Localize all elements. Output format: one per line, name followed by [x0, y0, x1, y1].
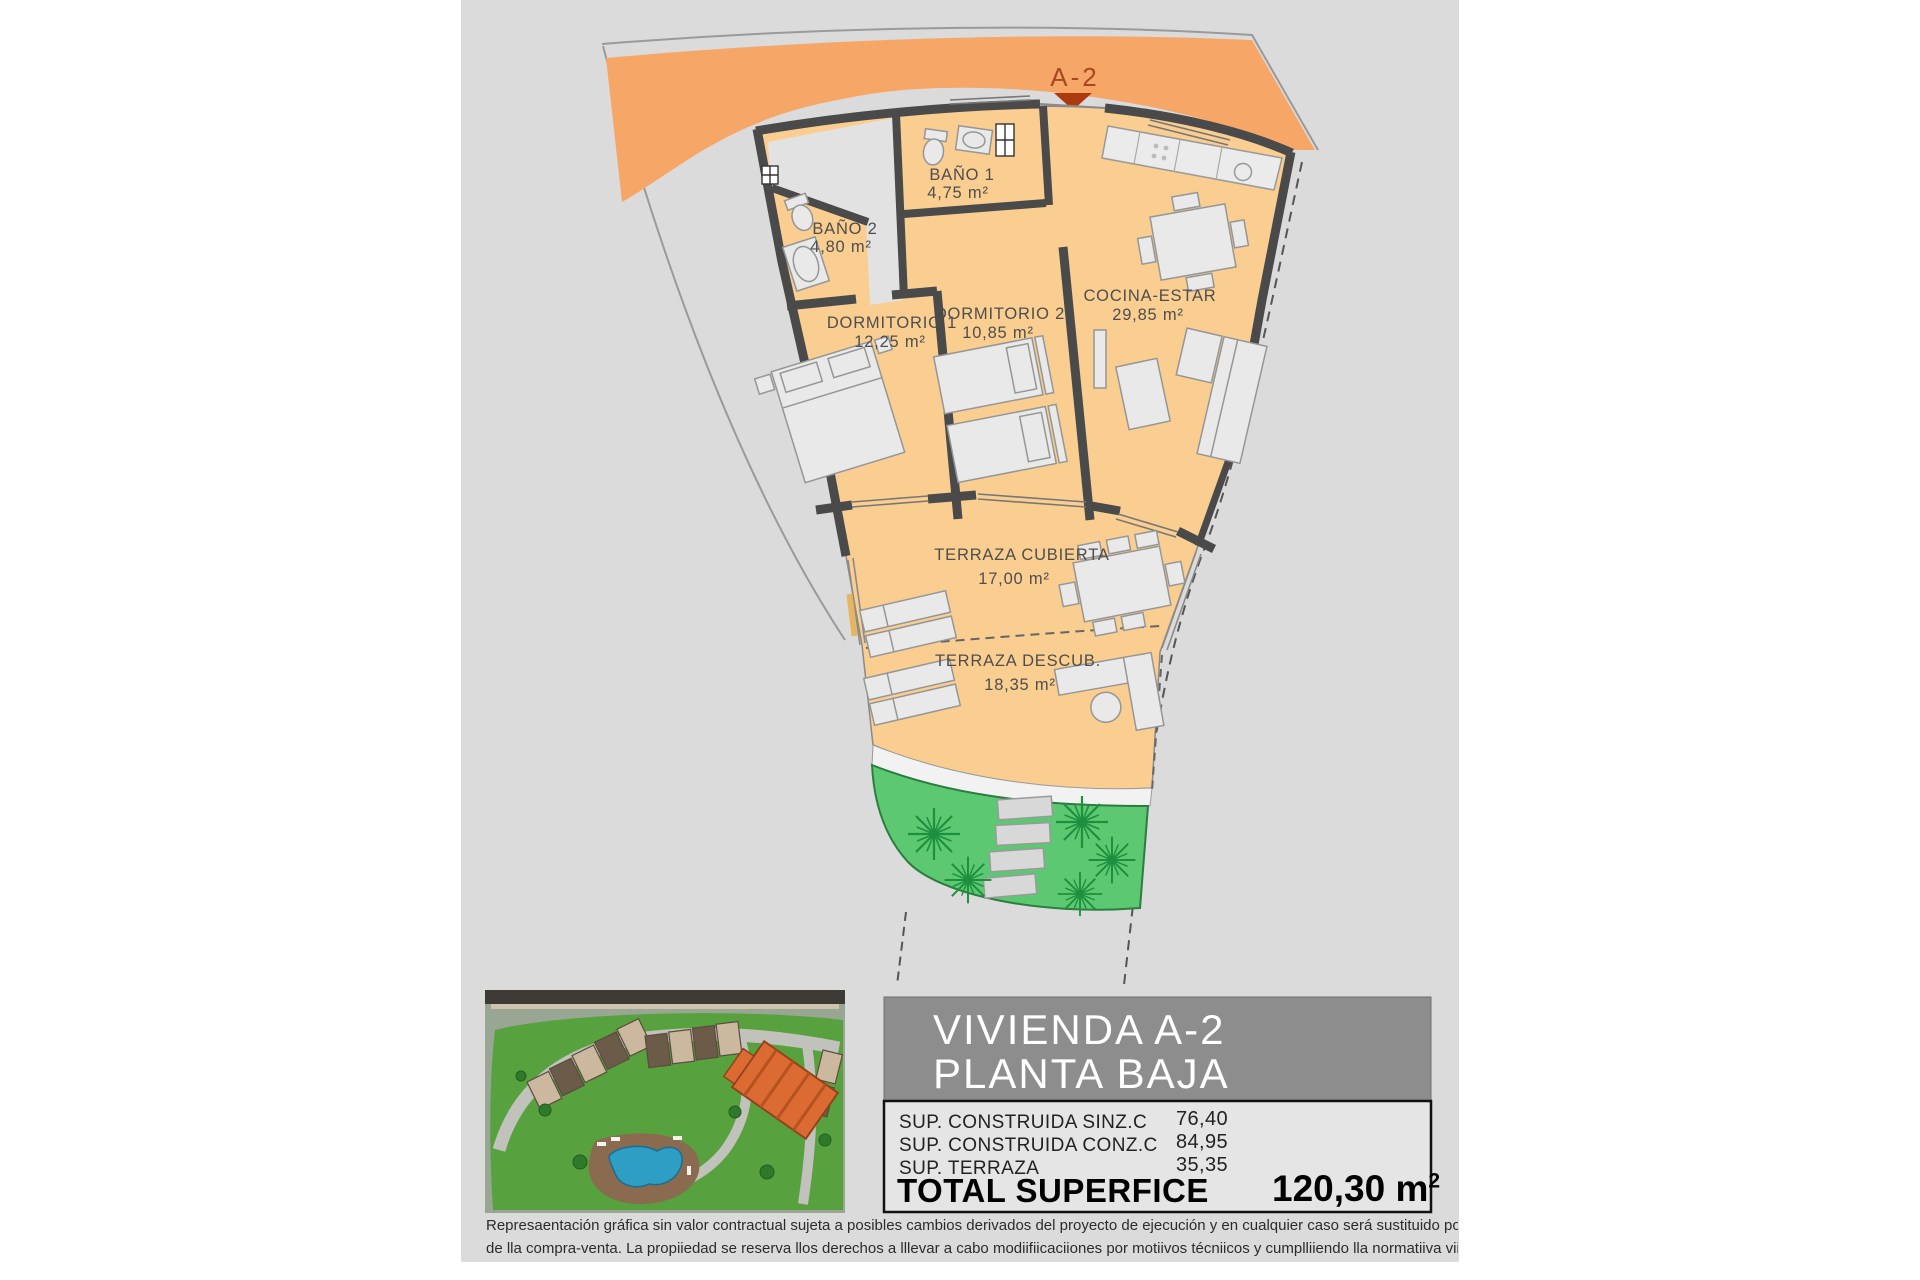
unit-title-line2: PLANTA BAJA: [933, 1052, 1230, 1096]
unit-title-line1: VIVIENDA A-2: [933, 1008, 1225, 1052]
room-label-bano1: BAÑO 1: [929, 164, 994, 184]
room-label-dormitorio2: DORMITORIO 2: [935, 305, 1065, 323]
total-surface-number: 120,30 m: [1272, 1168, 1428, 1209]
room-label-terraza-descub: TERRAZA DESCUB.: [935, 652, 1101, 670]
room-area-dormitorio2: 10,85 m²: [962, 324, 1034, 342]
surface-row-label: SUP. CONSTRUIDA SINZ.C: [899, 1111, 1147, 1134]
floor-plan-sheet: A-2: [0, 0, 1920, 1280]
room-label-cocina-estar: COCINA-ESTAR: [1083, 287, 1216, 305]
tv-bench: [1094, 330, 1106, 388]
total-surface-value: 120,30 m2: [1272, 1168, 1440, 1210]
washbasin: [955, 126, 992, 154]
room-area-terraza-cubierta: 17,00 m²: [978, 570, 1050, 588]
total-surface-sup: 2: [1428, 1170, 1440, 1193]
disclaimer: Represaentación gráfica sin valor contra…: [486, 1214, 1458, 1262]
room-area-bano1: 4,75 m²: [927, 184, 989, 202]
site-plan-thumbnail: [485, 990, 845, 1213]
disclaimer-line1: Represaentación gráfica sin valor contra…: [486, 1214, 1458, 1237]
room-area-terraza-descub: 18,35 m²: [984, 676, 1056, 694]
surface-row-value: 76,40: [1176, 1108, 1228, 1131]
room-area-cocina-estar: 29,85 m²: [1112, 306, 1184, 324]
surface-row-value: 84,95: [1176, 1131, 1228, 1154]
unit-marker-label: A-2: [1050, 62, 1099, 92]
room-area-bano2: 4,80 m²: [810, 238, 872, 256]
surface-row-label: SUP. CONSTRUIDA CONZ.C: [899, 1134, 1158, 1157]
total-surface-label: TOTAL SUPERFICE: [897, 1172, 1209, 1210]
disclaimer-line2: de lla compra-venta. La propiiedad se re…: [486, 1237, 1458, 1260]
room-label-terraza-cubierta: TERRAZA CUBIERTA: [934, 546, 1109, 564]
room-area-dormitorio1: 12,25 m²: [854, 333, 926, 351]
room-label-bano2: BAÑO 2: [812, 218, 877, 238]
